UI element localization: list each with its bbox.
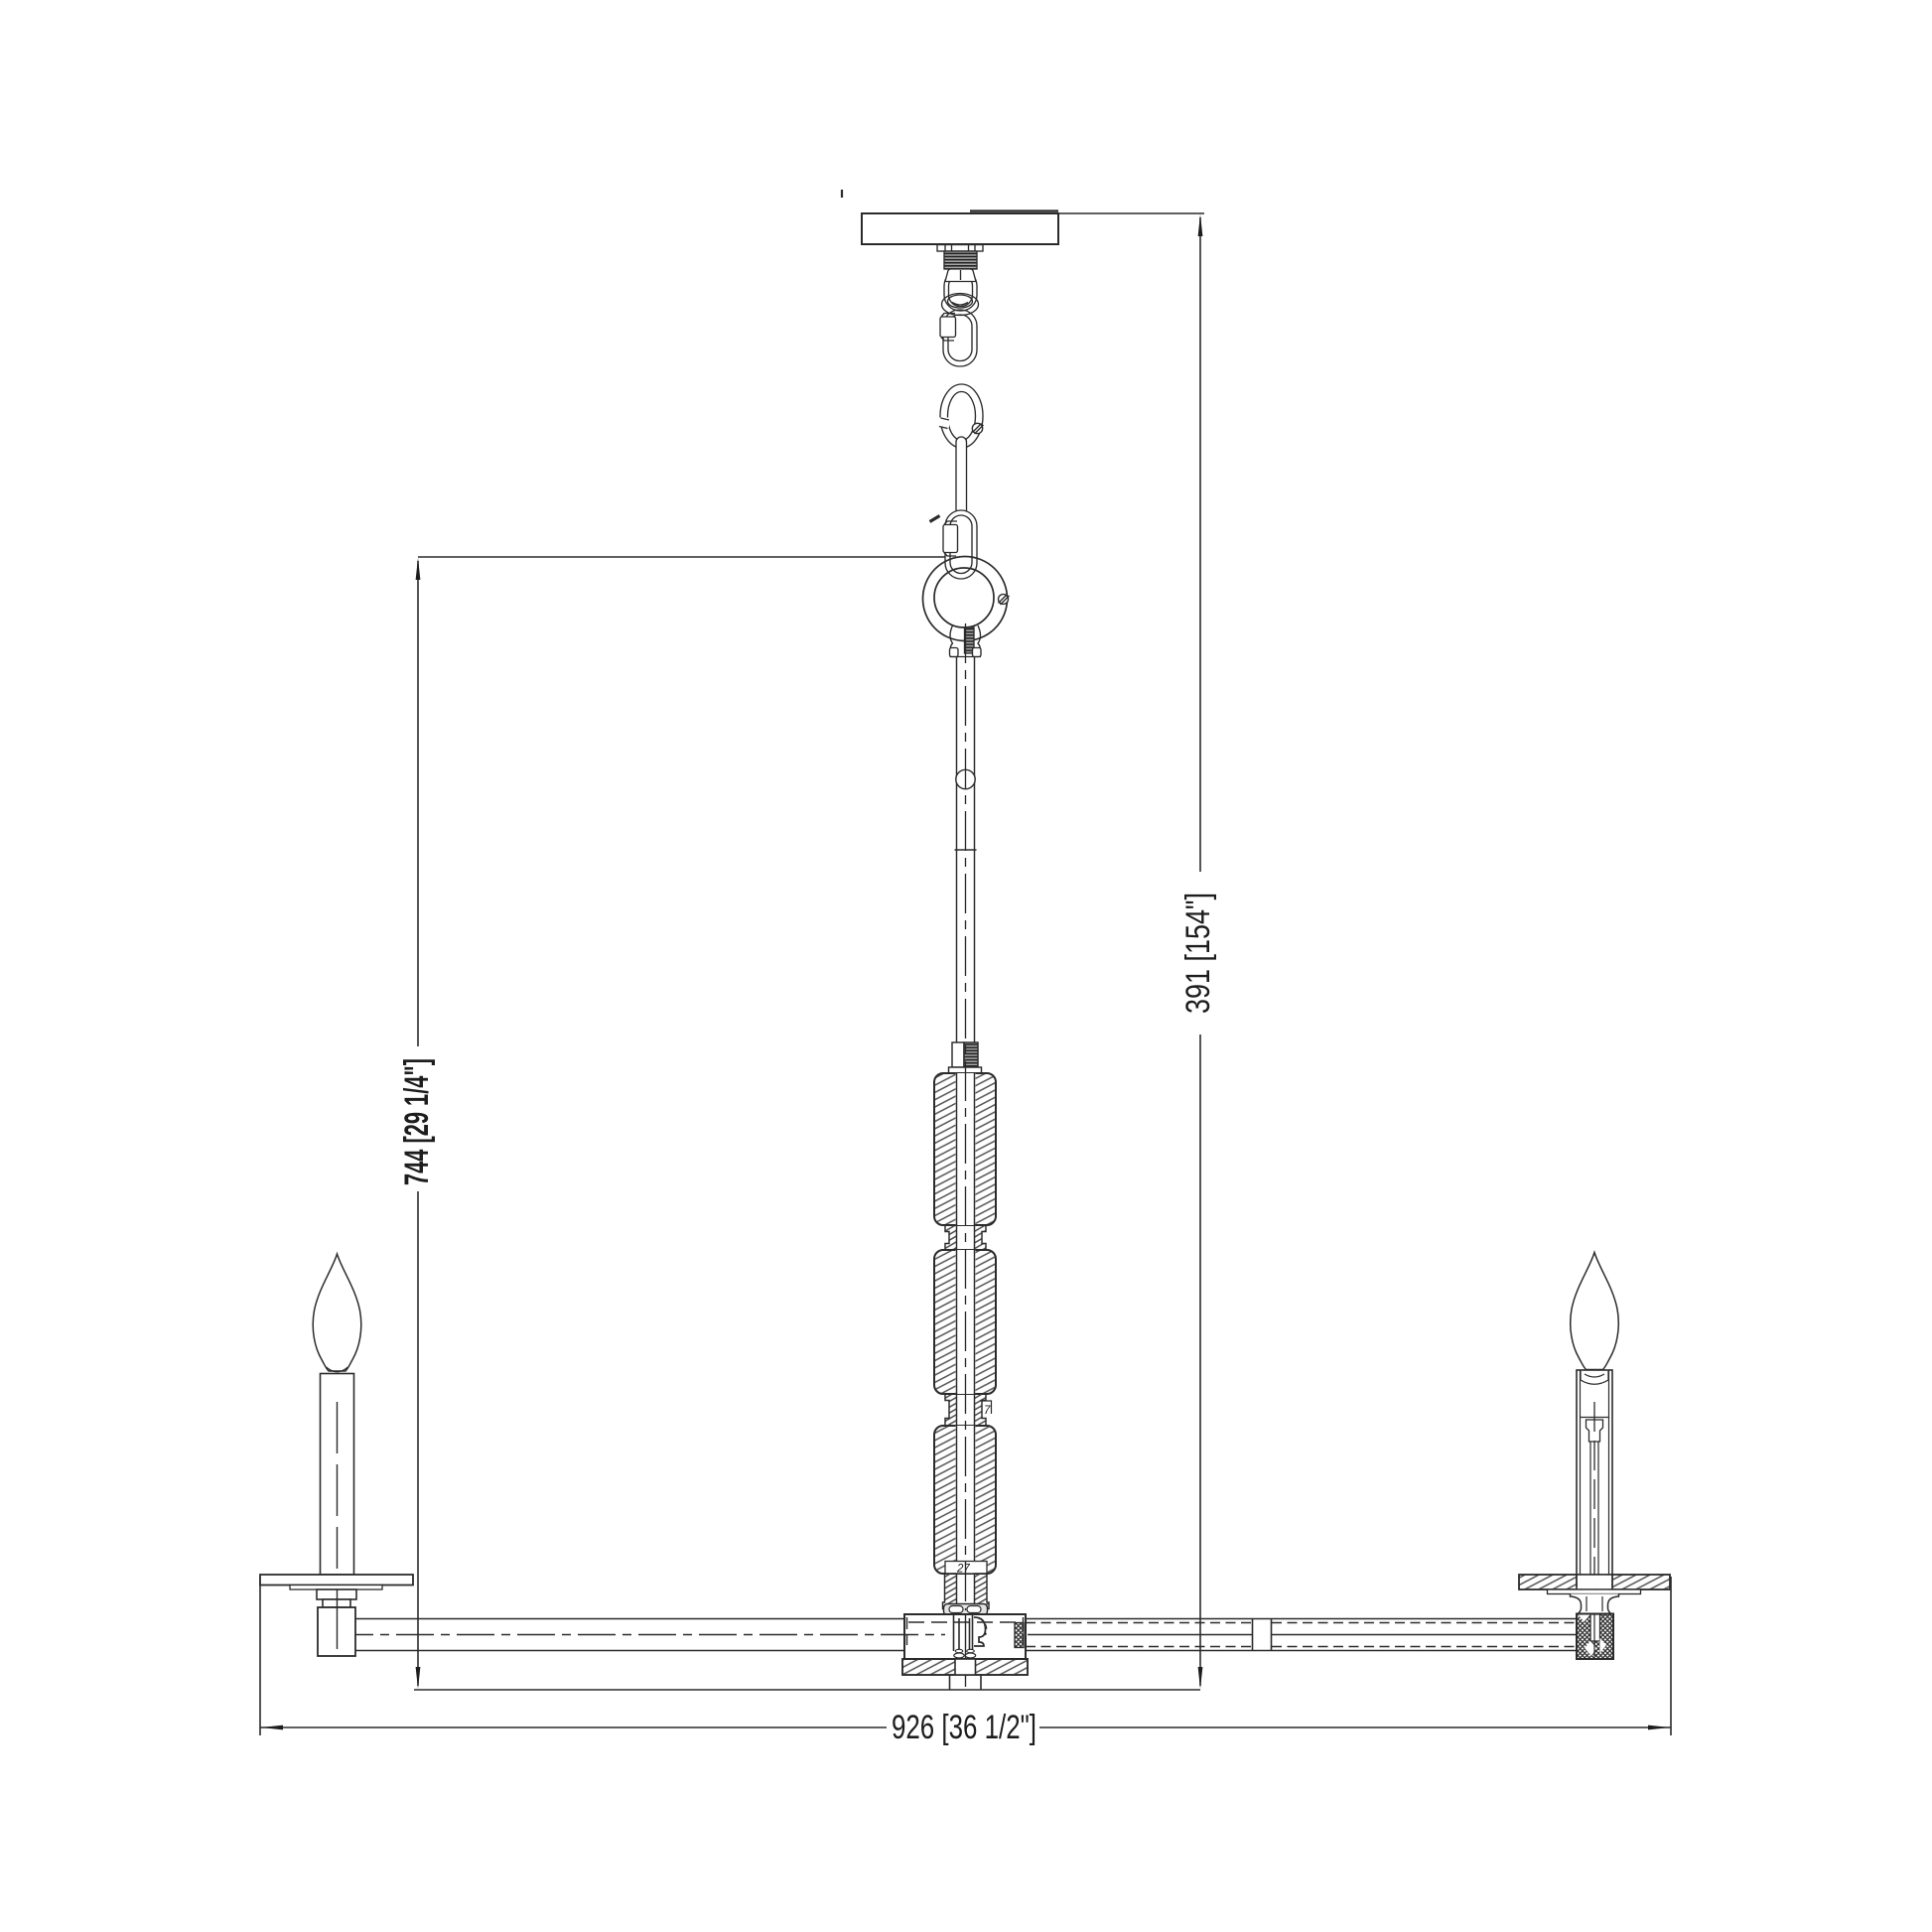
svg-text:744 [29 1/4"]: 744 [29 1/4"] [398,1058,436,1185]
svg-text:7: 7 [984,1405,991,1417]
svg-text:27: 27 [956,1564,970,1576]
svg-text:391 [154"]: 391 [154"] [1179,893,1217,1014]
svg-text:926 [36 1/2"]: 926 [36 1/2"] [892,1709,1036,1746]
